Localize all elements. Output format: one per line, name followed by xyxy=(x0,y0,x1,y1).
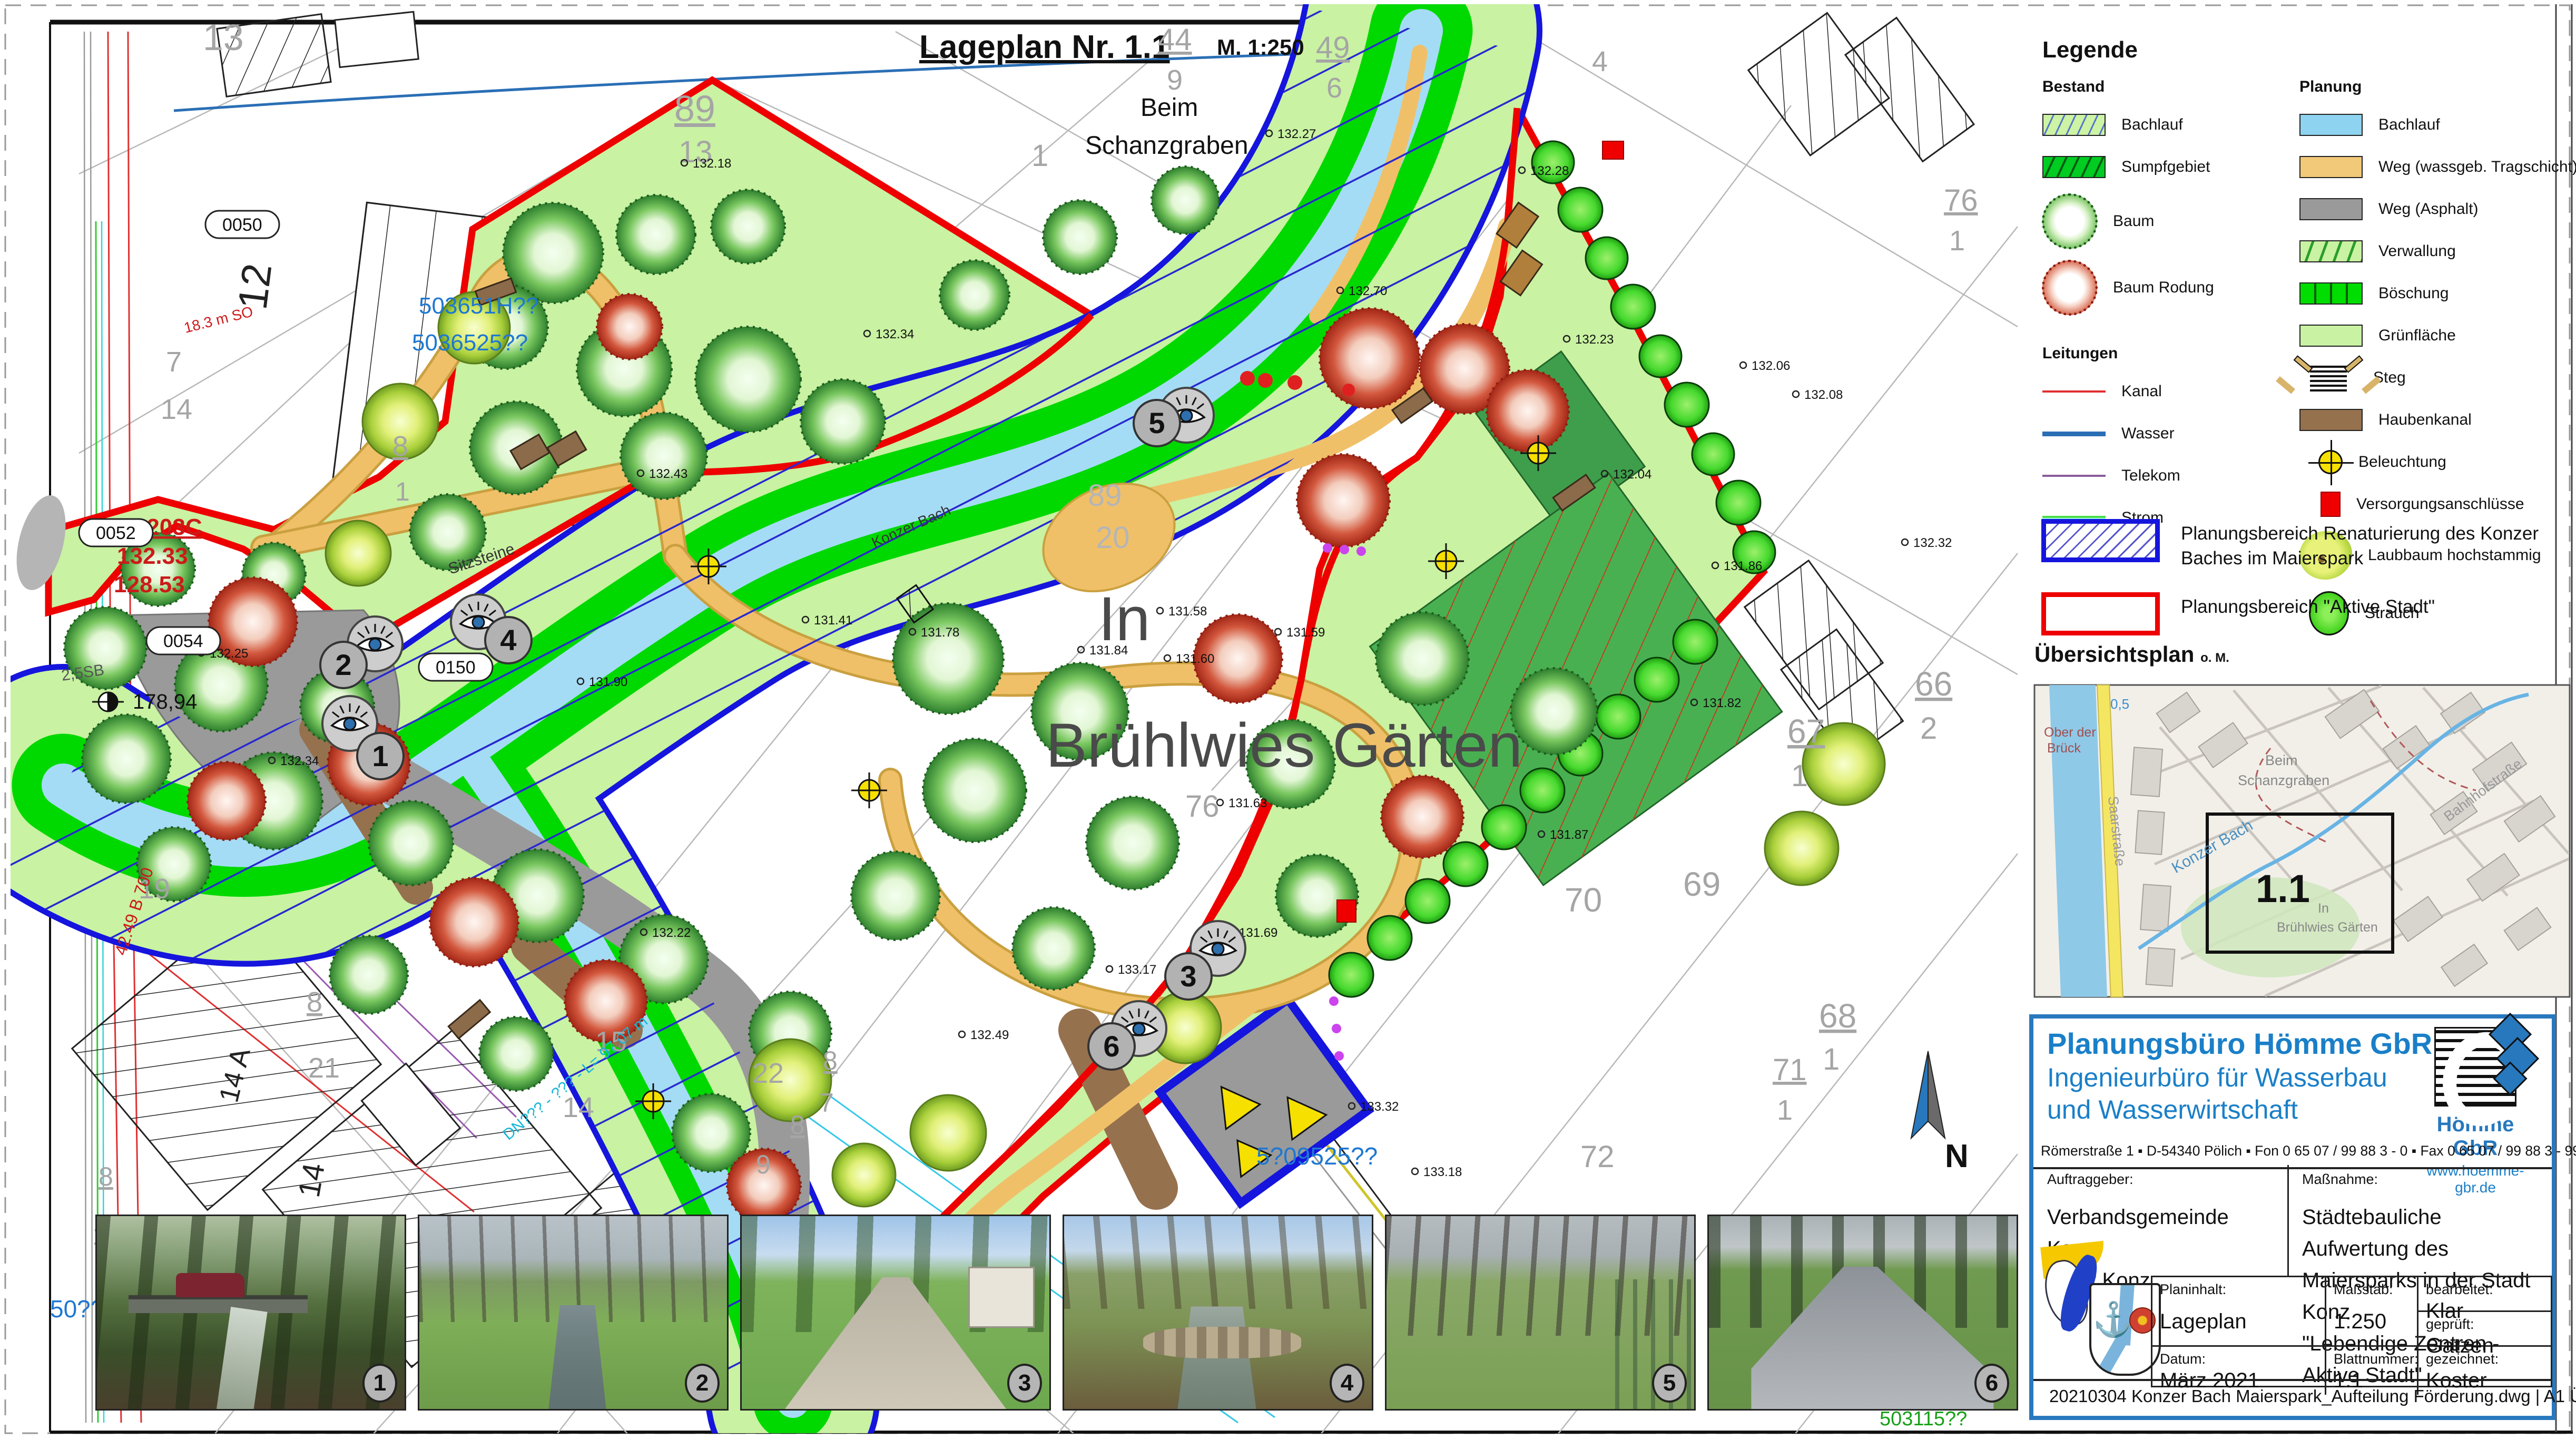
legend-title: Legende xyxy=(2042,37,2558,63)
svg-text:76: 76 xyxy=(1185,789,1220,824)
svg-text:8: 8 xyxy=(307,986,322,1018)
planungsbereich-label: Planungsbereich Renaturierung des Konzer… xyxy=(2181,519,2563,571)
svg-text:44: 44 xyxy=(1158,23,1192,57)
legend-item: Weg (Asphalt) xyxy=(2299,194,2558,224)
svg-text:1: 1 xyxy=(1791,759,1808,793)
legend-item: Versorgungsanschlüsse xyxy=(2299,489,2558,520)
svg-text:133.17: 133.17 xyxy=(1118,963,1156,977)
svg-text:131.63: 131.63 xyxy=(1228,796,1267,810)
svg-text:89: 89 xyxy=(674,88,715,129)
legend-item-label: Haubenkanal xyxy=(2378,411,2472,429)
svg-text:3: 3 xyxy=(1180,960,1196,993)
legend-item-label: Weg (Asphalt) xyxy=(2378,200,2479,218)
planungsbereich-label: Planungsbereich "Aktive Stadt" xyxy=(2181,592,2435,619)
svg-text:67: 67 xyxy=(1787,712,1825,750)
svg-text:89: 89 xyxy=(1088,478,1122,513)
bearbeitet-label: bearbeitet: xyxy=(2426,1281,2548,1298)
svg-text:In: In xyxy=(2318,901,2329,916)
svg-text:Beim: Beim xyxy=(2265,752,2298,768)
svg-text:7: 7 xyxy=(166,346,182,378)
legend-item-label: Sumpfgebiet xyxy=(2121,158,2210,176)
legend-item: Baum xyxy=(2042,194,2269,249)
svg-text:1: 1 xyxy=(1949,225,1965,257)
legend-item-label: Baum xyxy=(2113,212,2154,230)
haubenkanal-swatch xyxy=(2299,409,2363,431)
svg-text:131.69: 131.69 xyxy=(1239,926,1277,940)
bachlauf-bestand-swatch xyxy=(2042,114,2106,136)
photo-number-badge: 6 xyxy=(1974,1364,2009,1403)
plan-info-table: Planinhalt: Lageplan Maßstab: 1:250 bear… xyxy=(2151,1276,2552,1387)
svg-text:9: 9 xyxy=(1167,64,1183,96)
svg-text:18.3 m SO: 18.3 m SO xyxy=(182,303,254,336)
planungsbereich-item: Planungsbereich Renaturierung des Konzer… xyxy=(2041,519,2563,571)
svg-text:1: 1 xyxy=(1031,139,1048,173)
legend-item: Weg (wassgeb. Tragschicht) xyxy=(2299,152,2558,182)
kanal-line-icon xyxy=(2042,390,2106,393)
svg-text:7: 7 xyxy=(819,1088,834,1118)
svg-text:132.34: 132.34 xyxy=(280,754,319,768)
svg-text:132.49: 132.49 xyxy=(970,1028,1009,1042)
svg-text:21: 21 xyxy=(308,1052,340,1084)
lageplan-sheet: 1.1 Lageplan Nr. 1.1M. 1:250BeimSchanzgr… xyxy=(0,0,2576,1439)
legend-item: Beleuchtung xyxy=(2299,447,2558,477)
legend-item: Haubenkanal xyxy=(2299,405,2558,435)
svg-text:20: 20 xyxy=(1096,521,1130,555)
legend-item: Böschung xyxy=(2299,278,2558,309)
svg-text:131.84: 131.84 xyxy=(1089,643,1128,658)
legend-item: Wasser xyxy=(2042,418,2269,449)
svg-text:N: N xyxy=(1945,1138,1969,1174)
svg-text:Ober der: Ober der xyxy=(2044,725,2096,740)
svg-text:2: 2 xyxy=(335,648,351,681)
company-line2: Ingenieurbüro für Wasserbau xyxy=(2047,1062,2432,1094)
bereich-renaturierung-swatch xyxy=(2041,519,2160,562)
photo-number-badge: 3 xyxy=(1007,1364,1042,1403)
legend-item: Steg xyxy=(2299,363,2558,393)
svg-text:68: 68 xyxy=(1819,997,1856,1035)
site-photo-4: 4 xyxy=(1063,1215,1373,1411)
uebersicht-highlight: 1.1 xyxy=(2256,867,2310,911)
svg-text:49: 49 xyxy=(1316,31,1350,65)
svg-text:9: 9 xyxy=(756,1150,771,1179)
bereich-aktive-stadt-swatch xyxy=(2041,592,2160,635)
steg-icon xyxy=(2299,364,2357,391)
svg-text:132.04: 132.04 xyxy=(1613,467,1651,482)
svg-text:132.22: 132.22 xyxy=(652,926,691,940)
svg-text:132.18: 132.18 xyxy=(693,156,731,171)
svg-text:132.08: 132.08 xyxy=(1804,388,1843,402)
svg-text:132.43: 132.43 xyxy=(649,467,687,481)
legend-item-label: Verwallung xyxy=(2378,242,2456,260)
svg-text:131.41: 131.41 xyxy=(814,613,852,628)
svg-text:Brühlwies Gärten: Brühlwies Gärten xyxy=(1046,711,1522,780)
svg-text:131.78: 131.78 xyxy=(921,625,959,640)
svg-text:503115??: 503115?? xyxy=(1880,1408,1967,1430)
legend-item-label: Kanal xyxy=(2121,383,2162,400)
site-photo-5: 5 xyxy=(1385,1215,1696,1411)
legend-bestand-list: BachlaufSumpfgebietBaumBaum Rodung xyxy=(2042,110,2269,315)
svg-text:1: 1 xyxy=(1777,1094,1793,1126)
legend-leitungen-list: KanalWasserTelekomStrom xyxy=(2042,376,2269,533)
svg-text:5036525??: 5036525?? xyxy=(412,330,528,356)
svg-text:6: 6 xyxy=(1103,1030,1119,1063)
svg-text:132.27: 132.27 xyxy=(1277,127,1316,141)
legend-item: Telekom xyxy=(2042,461,2269,491)
svg-text:132.06: 132.06 xyxy=(1752,359,1790,373)
svg-text:132.32: 132.32 xyxy=(1913,536,1952,550)
svg-text:131.60: 131.60 xyxy=(1176,652,1214,666)
massnahme-label: Maßnahme: xyxy=(2302,1171,2550,1188)
svg-text:131.58: 131.58 xyxy=(1168,604,1207,619)
legend-item: Sumpfgebiet xyxy=(2042,152,2269,182)
planungsbereich-item: Planungsbereich "Aktive Stadt" xyxy=(2041,592,2563,635)
baum-icon xyxy=(2042,194,2097,249)
svg-text:14: 14 xyxy=(161,394,192,425)
svg-text:133.18: 133.18 xyxy=(1423,1165,1462,1179)
svg-text:Lageplan Nr. 1.1: Lageplan Nr. 1.1 xyxy=(919,29,1170,65)
verwallung-swatch xyxy=(2299,240,2363,262)
versorgung-icon xyxy=(2321,492,2341,517)
svg-text:1: 1 xyxy=(1823,1042,1840,1076)
svg-text:178,94: 178,94 xyxy=(133,690,197,713)
planinhalt-label: Planinhalt: xyxy=(2160,1281,2322,1298)
legend-item-label: Weg (wassgeb. Tragschicht) xyxy=(2378,158,2576,176)
svg-text:22: 22 xyxy=(752,1058,784,1089)
svg-text:Schanzgraben: Schanzgraben xyxy=(1085,132,1248,160)
svg-text:132.28: 132.28 xyxy=(1530,164,1569,178)
svg-text:8: 8 xyxy=(790,1110,805,1140)
uebersichtsplan-title: Übersichtsplan o. M. xyxy=(2034,642,2229,667)
massnahme-line1: Städtebauliche Aufwertung des xyxy=(2302,1201,2550,1265)
svg-text:131.59: 131.59 xyxy=(1286,625,1325,640)
bachlauf-swatch xyxy=(2299,114,2363,136)
svg-text:0050: 0050 xyxy=(222,215,262,235)
legend-item-label: Steg xyxy=(2373,369,2406,387)
svg-text:4: 4 xyxy=(500,623,516,657)
geprueft-label: geprüft: xyxy=(2426,1316,2548,1333)
photo-number-badge: 4 xyxy=(1330,1364,1364,1403)
company-line3: und Wasserwirtschaft xyxy=(2047,1094,2432,1126)
svg-text:133.32: 133.32 xyxy=(1360,1100,1399,1114)
svg-text:8: 8 xyxy=(823,1046,838,1075)
company-name: Planungsbüro Hömme GbR xyxy=(2047,1026,2432,1062)
legend-item-label: Böschung xyxy=(2378,285,2449,302)
svg-text:Schanzgraben: Schanzgraben xyxy=(2238,772,2329,788)
svg-text:1: 1 xyxy=(395,477,410,506)
legend-item-label: Beleuchtung xyxy=(2358,453,2446,471)
city-emblems: ⚓ xyxy=(2039,1250,2165,1387)
svg-text:132.70: 132.70 xyxy=(1349,284,1387,298)
svg-text:6: 6 xyxy=(1326,72,1342,104)
svg-text:0,5: 0,5 xyxy=(2110,696,2129,712)
legend-item: Bachlauf xyxy=(2042,110,2269,140)
svg-text:128.53: 128.53 xyxy=(114,572,185,598)
svg-text:72: 72 xyxy=(1580,1140,1615,1174)
planinhalt-value: Lageplan xyxy=(2160,1308,2322,1335)
svg-text:131.82: 131.82 xyxy=(1703,696,1741,710)
svg-text:14: 14 xyxy=(292,1160,331,1200)
wasser-line-icon xyxy=(2042,432,2106,436)
legend-item-label: Bachlauf xyxy=(2378,116,2440,134)
weg-tragschicht-swatch xyxy=(2299,156,2363,178)
gezeichnet-label: gezeichnet: xyxy=(2426,1351,2548,1367)
svg-text:5?09525??: 5?09525?? xyxy=(1256,1142,1378,1170)
legend-item-label: Versorgungsanschlüsse xyxy=(2356,495,2524,513)
boeschung-swatch xyxy=(2299,282,2363,305)
site-photo-1: 1 xyxy=(95,1215,406,1411)
legend-item: Grünfläche xyxy=(2299,320,2558,351)
telekom-line-icon xyxy=(2042,475,2106,477)
svg-text:69: 69 xyxy=(1683,865,1720,903)
photo-number-badge: 2 xyxy=(685,1364,720,1403)
title-block: Planungsbüro Hömme GbR Ingenieurbüro für… xyxy=(2029,1014,2556,1420)
datum-label: Datum: xyxy=(2160,1351,2322,1367)
svg-text:5: 5 xyxy=(1148,406,1165,439)
legend-item-label: Baum Rodung xyxy=(2113,279,2214,297)
weg-asphalt-swatch xyxy=(2299,198,2363,220)
svg-text:4: 4 xyxy=(1592,46,1608,77)
svg-text:1: 1 xyxy=(372,739,388,772)
svg-text:0052: 0052 xyxy=(96,523,136,543)
site-photo-3: 3 xyxy=(740,1215,1051,1411)
legend-item-label: Telekom xyxy=(2121,467,2180,485)
svg-text:8: 8 xyxy=(99,1162,113,1191)
auftraggeber-label: Auftraggeber: xyxy=(2047,1171,2279,1188)
konz-coat-of-arms-icon: ⚓ xyxy=(2089,1283,2161,1376)
svg-text:131.87: 131.87 xyxy=(1550,828,1588,842)
svg-text:131.86: 131.86 xyxy=(1724,559,1762,573)
legend-planung-header: Planung xyxy=(2299,78,2558,96)
legend-leitungen-header: Leitungen xyxy=(2042,345,2269,363)
blattnummer-label: Blattnummer: xyxy=(2334,1351,2414,1367)
legend-item: Baum Rodung xyxy=(2042,260,2269,315)
north-arrow-icon xyxy=(1911,1051,1945,1138)
svg-text:0150: 0150 xyxy=(436,658,476,678)
svg-text:Brühlwies Gärten: Brühlwies Gärten xyxy=(2277,920,2378,935)
svg-text:132.23: 132.23 xyxy=(1575,332,1614,347)
svg-text:132.34: 132.34 xyxy=(876,327,914,341)
photo-number-badge: 5 xyxy=(1652,1364,1687,1403)
massstab-label: Maßstab: xyxy=(2334,1281,2414,1298)
svg-text:14: 14 xyxy=(563,1092,594,1123)
legend-panel: Legende Bestand BachlaufSumpfgebietBaumB… xyxy=(2031,37,2558,78)
svg-text:76: 76 xyxy=(1944,183,1978,218)
legend-item: Verwallung xyxy=(2299,236,2558,267)
svg-text:Brück: Brück xyxy=(2047,741,2081,756)
legend-item-label: Wasser xyxy=(2121,425,2175,443)
photo-number-badge: 1 xyxy=(362,1364,397,1403)
hoemme-logo-icon xyxy=(2434,1027,2516,1107)
svg-text:8: 8 xyxy=(392,430,408,462)
legend-bestand-header: Bestand xyxy=(2042,78,2269,96)
svg-text:Beim: Beim xyxy=(1140,94,1198,122)
legend-item: Bachlauf xyxy=(2299,110,2558,140)
drawing-file-footer: 20210304 Konzer Bach Maierspark_Aufteilu… xyxy=(2033,1379,2552,1416)
svg-text:70: 70 xyxy=(1565,881,1602,919)
svg-text:0054: 0054 xyxy=(163,631,203,651)
massstab-value: 1:250 xyxy=(2334,1308,2414,1335)
baum-rodung-icon xyxy=(2042,260,2097,315)
svg-text:M. 1:250: M. 1:250 xyxy=(1217,35,1304,60)
svg-text:2: 2 xyxy=(1920,711,1937,746)
svg-text:503651H??: 503651H?? xyxy=(419,293,539,319)
svg-text:13: 13 xyxy=(203,17,244,58)
legend-item-label: Grünfläche xyxy=(2378,327,2456,345)
gruenflaeche-swatch xyxy=(2299,325,2363,347)
sumpfgebiet-swatch xyxy=(2042,156,2106,178)
svg-text:12: 12 xyxy=(229,261,281,312)
legend-item: Kanal xyxy=(2042,376,2269,407)
site-photo-6: 6 xyxy=(1707,1215,2018,1411)
planungsbereich-legend: Planungsbereich Renaturierung des Konzer… xyxy=(2041,519,2563,657)
beleuchtung-icon xyxy=(2318,450,2343,474)
svg-text:131.90: 131.90 xyxy=(589,675,627,689)
legend-item-label: Bachlauf xyxy=(2121,116,2183,134)
site-photo-2: 2 xyxy=(418,1215,729,1411)
svg-text:66: 66 xyxy=(1915,665,1952,703)
svg-text:71: 71 xyxy=(1773,1053,1807,1087)
